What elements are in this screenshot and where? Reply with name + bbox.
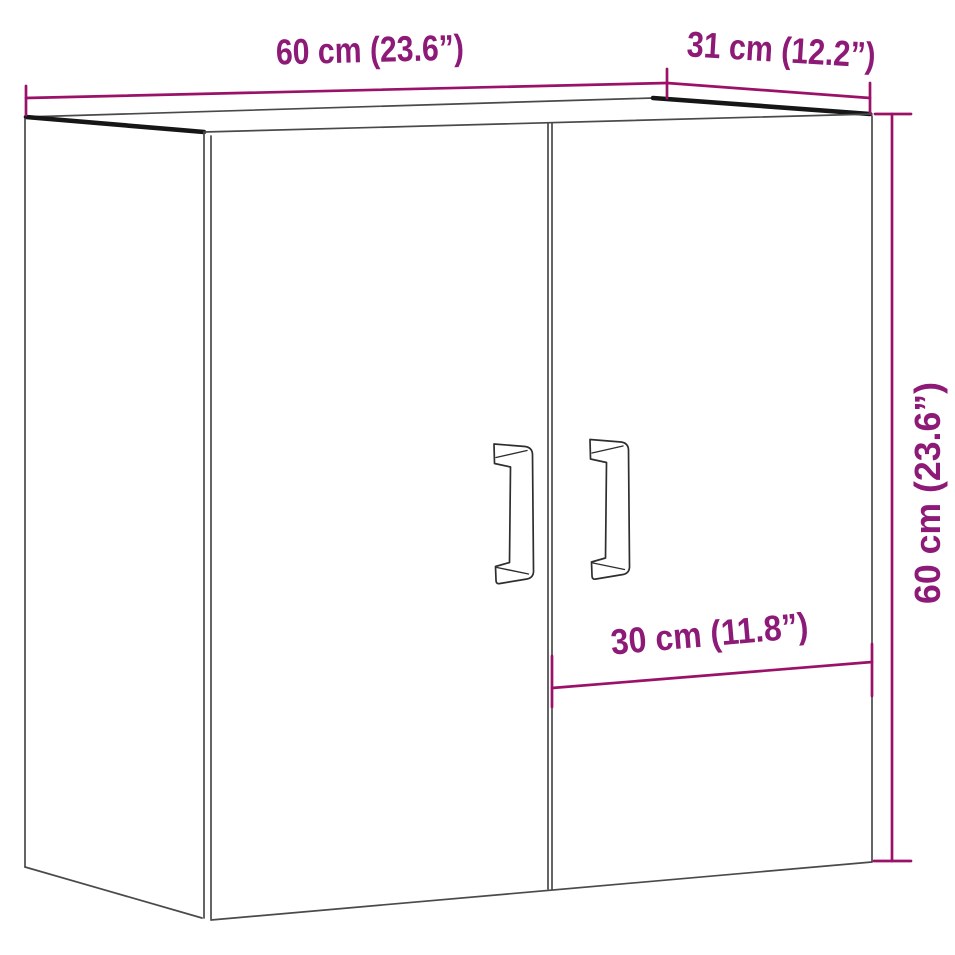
door-width-label: 30 cm (11.8”) xyxy=(609,604,810,662)
top-left-panel-edge xyxy=(26,117,204,132)
dim-height-right xyxy=(874,114,911,861)
door-width-line xyxy=(552,662,872,688)
width-top-label: 60 cm (23.6”) xyxy=(275,27,464,73)
cabinet-diagram-canvas: 60 cm (23.6”) 31 cm (12.2”) 60 cm (23.6”… xyxy=(0,0,955,955)
height-right-label: 60 cm (23.6”) xyxy=(907,382,948,604)
bottom-front-edge xyxy=(211,862,872,920)
right-door-handle xyxy=(590,440,630,580)
top-right-panel-edge xyxy=(653,98,870,114)
dimension-lines xyxy=(26,69,911,861)
width-line xyxy=(26,83,667,98)
top-front-edge xyxy=(204,114,872,132)
product-dimension-diagram: 60 cm (23.6”) 31 cm (12.2”) 60 cm (23.6”… xyxy=(0,0,955,955)
cabinet-drawing xyxy=(25,98,872,920)
bottom-left-edge xyxy=(25,867,202,918)
top-back-edge xyxy=(25,98,653,117)
left-door-handle xyxy=(494,444,534,584)
depth-line xyxy=(667,83,870,98)
depth-top-label: 31 cm (12.2”) xyxy=(686,23,877,75)
